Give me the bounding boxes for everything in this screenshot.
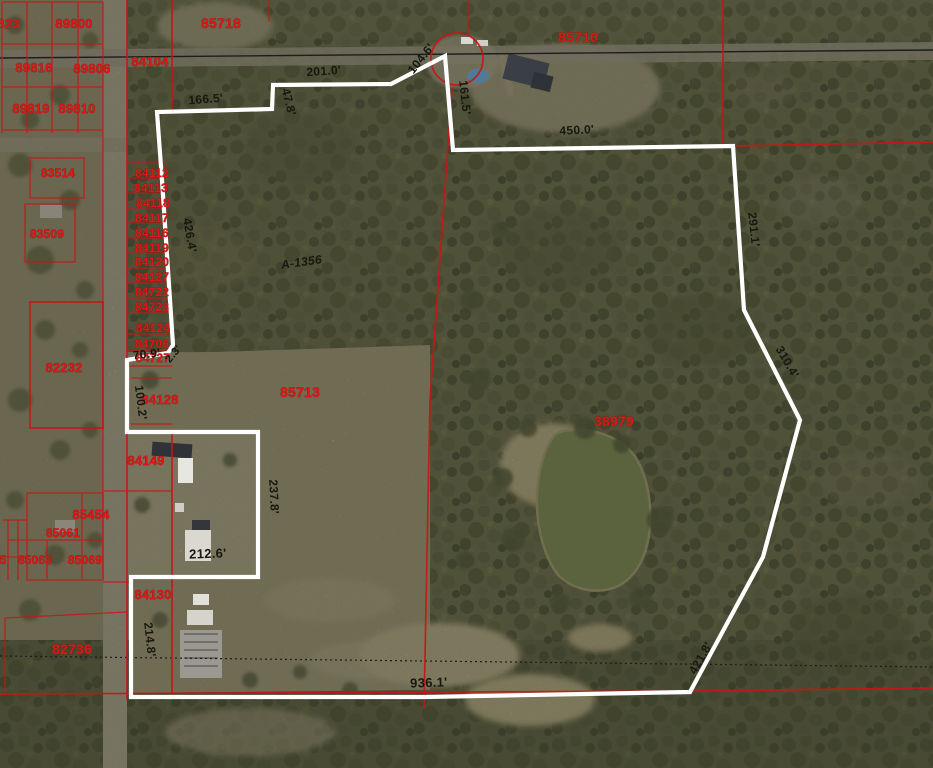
parcel-label-85713: 85713: [280, 384, 320, 400]
parcel-label-83514: 83514: [41, 166, 75, 180]
map-viewport[interactable]: 8982389800898168980689819898108410485718…: [0, 0, 933, 768]
dimension-label-2378: 237.8': [266, 479, 282, 514]
parcel-label-85069: 85069: [68, 553, 102, 567]
shed: [175, 503, 184, 512]
parcel-label-84120: 84120: [135, 255, 169, 269]
dimension-label-1665: 166.5': [188, 91, 224, 107]
parcel-label-84722: 84722: [135, 285, 169, 299]
dimension-label-4500: 450.0': [559, 122, 594, 138]
parcel-label-89810: 89810: [58, 101, 95, 116]
parcel-label-84149: 84149: [127, 453, 164, 468]
dimension-label-9361: 936.1': [410, 674, 448, 690]
parcel-label-89816: 89816: [15, 60, 52, 75]
dimension-label-2010: 201.0': [306, 63, 342, 79]
parcel-label-89800: 89800: [55, 16, 92, 31]
parcel-label-84130: 84130: [134, 587, 171, 602]
parcel-label-84117: 84117: [135, 211, 169, 225]
parcel-label-89806: 89806: [73, 61, 110, 76]
parcel-label-84116: 84116: [135, 226, 169, 240]
house-west: [40, 205, 62, 218]
barn-roof-white: [187, 610, 213, 625]
parcel-label-84127: 84127: [135, 270, 169, 284]
parcel-label-38979: 38979: [594, 413, 634, 429]
building-white: [178, 458, 193, 483]
roof-dark: [192, 520, 210, 531]
parcel-label-85061: 85061: [46, 526, 80, 540]
parcel-label-89823: 89823: [0, 16, 20, 31]
dimension-label-709: 70.9': [132, 346, 161, 363]
parcel-label-85454: 85454: [72, 507, 110, 522]
parcel-label-5: 5: [0, 553, 7, 567]
shed-white: [193, 594, 209, 605]
parcel-label-85710: 85710: [558, 29, 598, 45]
parcel-label-84119: 84119: [135, 241, 169, 255]
parcel-label-82736: 82736: [52, 641, 92, 657]
parcel-label-84112: 84112: [135, 166, 169, 180]
parcel-label-83509: 83509: [30, 227, 64, 241]
terrain-layer: [0, 0, 933, 768]
parcel-label-84723: 84723: [135, 300, 169, 314]
parcel-label-85718: 85718: [201, 15, 241, 31]
parcel-label-85063: 85063: [18, 553, 52, 567]
parcel-label-82232: 82232: [45, 360, 82, 375]
parcel-label-84104: 84104: [131, 54, 169, 69]
parcel-label-84118: 84118: [136, 196, 170, 210]
barn: [180, 630, 222, 678]
dimension-label-2126: 212.6': [189, 545, 227, 561]
parcel-label-84113: 84113: [134, 181, 168, 195]
aerial-map-canvas[interactable]: 8982389800898168980689819898108410485718…: [0, 0, 933, 768]
parcel-label-89819: 89819: [12, 101, 49, 116]
parcel-label-84124: 84124: [136, 321, 170, 335]
grain-overlay: [0, 0, 933, 768]
